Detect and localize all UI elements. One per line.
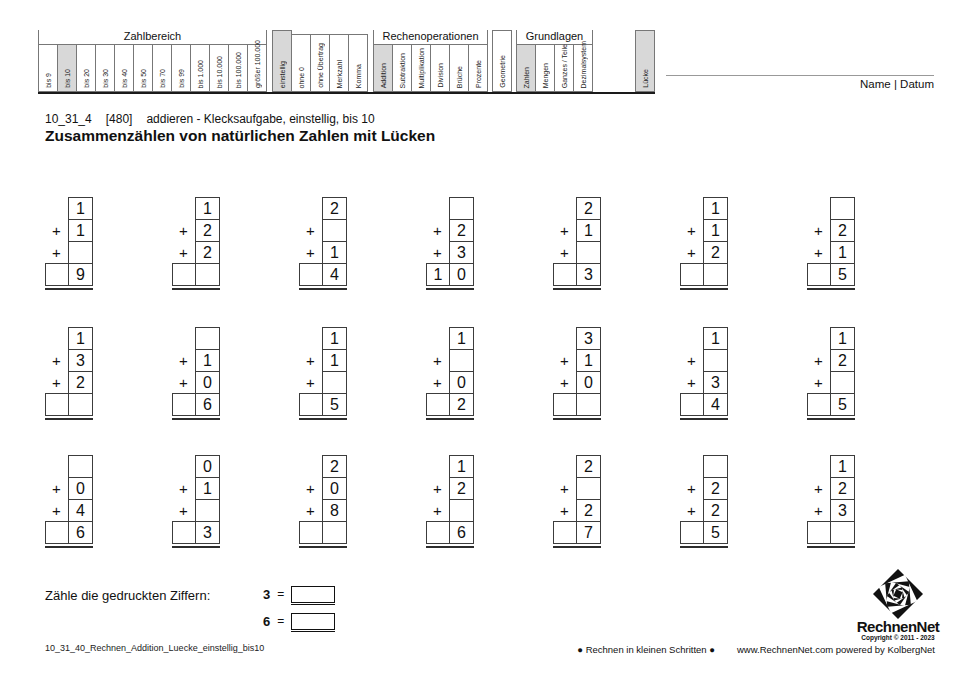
addend-row: + 2 [680,499,728,522]
filter-label: bis 70 [159,69,166,91]
plus-sign: + [45,219,68,242]
double-underline [299,288,347,290]
addend-box-3[interactable] [830,371,855,394]
addend-box-1[interactable] [195,327,220,350]
filter-ohne-0: ohne 0 [291,34,311,92]
addend-box-1: 1 [830,455,855,478]
addend-box-2: 2 [830,219,855,242]
filter-bis-70: bis 70 [152,44,172,92]
result-row [553,393,601,416]
addend-box-3: 2 [703,241,728,264]
result-tens-box[interactable] [807,263,831,286]
addend-box-3: 2 [195,241,220,264]
count-digit: 6 [263,613,270,630]
result-tens-box[interactable] [426,393,450,416]
plus-sign: + [553,371,576,394]
result-row: 6 [172,393,220,416]
addition-problem: 1 + 1 + 9 [45,197,93,290]
spacer [553,197,576,220]
filter-label: Division [437,63,444,91]
addend-box-3: 1 [830,241,855,264]
result-tens-box[interactable] [299,521,323,544]
result-ones-box[interactable] [195,263,220,286]
plus-sign: + [172,349,195,372]
spacer [680,197,703,220]
plus-sign: + [807,241,830,264]
addend-row: + 8 [299,499,347,522]
filter-label: Merkzahl [336,60,343,91]
addend-row: + 2 [807,219,855,242]
equals-sign: = [277,613,284,630]
result-ones-box: 5 [830,393,855,416]
addend-row: + 1 [45,219,93,242]
double-underline [45,418,93,420]
result-ones-box: 6 [449,521,474,544]
addend-row: + 2 [172,241,220,264]
plus-sign: + [807,499,830,522]
worksheet-desc: addieren - Klecksaufgabe, einstellig, bi… [146,112,374,126]
addition-problem: 1 + 1 + 5 [299,327,347,420]
addend-box-2: 0 [68,477,93,500]
addend-box-1: 1 [449,327,474,350]
addend-box-1: 2 [576,455,601,478]
filter-bis-9: bis 9 [38,44,58,92]
filter-bis-100000: bis 100.000 [228,44,248,92]
addend-row [426,197,474,220]
addend-box-3: 1 [322,241,347,264]
zahlbereich-cells: bis 9 bis 10 bis 20 bis 30 bis 40 bis 50… [38,44,267,92]
result-tens-box[interactable] [807,521,831,544]
addend-row: 0 [172,455,220,478]
addend-box-1: 1 [195,197,220,220]
addend-row: + 0 [553,371,601,394]
addend-box-3[interactable] [195,499,220,522]
addend-row: 1 [807,455,855,478]
addend-row: 1 [680,197,728,220]
footer-website: www.RechnenNet.com powered by KolbergNet [737,644,935,655]
result-tens-box[interactable] [45,393,69,416]
page-title: Zusammenzählen von natürlichen Zahlen mi… [45,127,435,145]
footer-filename: 10_31_40_Rechnen_Addition_Luecke_einstel… [45,643,264,653]
plus-sign: + [45,241,68,264]
addend-box-3[interactable] [449,499,474,522]
spacer [553,327,576,350]
plus-sign: + [299,371,322,394]
result-tens-box[interactable] [172,263,196,286]
result-row: 3 [172,521,220,544]
addend-box-2: 0 [322,477,347,500]
filter-division: Division [430,44,450,92]
result-ones-box: 4 [322,263,347,286]
footer-right: ● Rechnen in kleinen Schritten ● www.Rec… [577,644,935,655]
result-tens-box[interactable] [426,521,450,544]
result-row: 5 [680,521,728,544]
filter-label: Zahlen [523,67,530,91]
double-underline [291,631,335,632]
addend-box-2: 2 [830,477,855,500]
plus-sign: + [807,349,830,372]
filter-bis-10000: bis 10.000 [209,44,229,92]
addend-box-3: 4 [68,499,93,522]
result-row [45,393,93,416]
addend-row: + [299,219,347,242]
addend-box-2: 3 [68,349,93,372]
spacer [680,455,703,478]
addend-box-1[interactable] [703,455,728,478]
filter-label: ohne 0 [298,67,305,91]
plus-sign: + [45,371,68,394]
addend-box-1: 2 [322,455,347,478]
addend-row: + [680,349,728,372]
addend-box-2: 1 [576,349,601,372]
filter-label: bis 10.000 [216,56,223,91]
filter-label: bis 10 [64,69,71,91]
addend-row: + 3 [426,241,474,264]
filter-label: Ganzes / Teile [561,44,568,91]
result-tens-box[interactable] [299,263,323,286]
addend-row: + 1 [299,349,347,372]
plus-sign: + [426,499,449,522]
addend-row: + 1 [807,241,855,264]
filter-brueche: Brüche [449,44,469,92]
logo-name: RechnenNet [852,618,944,635]
plus-sign: + [172,371,195,394]
result-row [680,263,728,286]
result-row [172,263,220,286]
addend-box-3[interactable] [68,241,93,264]
filter-label: bis 99 [178,69,185,91]
result-tens-box[interactable] [172,393,196,416]
problems-row-2: 1 + 3 + 2 + 1 [45,327,855,420]
double-underline [45,546,93,548]
result-tens-box[interactable] [553,263,577,286]
addition-problem: 3 + 1 + 0 [553,327,601,420]
spacer [299,327,322,350]
result-tens-box[interactable] [553,521,577,544]
filter-label: bis 30 [102,69,109,91]
result-ones-box: 3 [576,263,601,286]
addend-box-2[interactable] [449,349,474,372]
filter-label: Addition [380,63,387,91]
addition-problem: 1 + 2 + 3 [807,455,855,548]
addend-box-1: 1 [703,327,728,350]
filter-multiplikation: Multiplikation [411,44,431,92]
result-row: 5 [299,393,347,416]
plus-sign: + [172,241,195,264]
filter-label: Subtraktion [399,53,406,91]
addend-row: + 2 [680,241,728,264]
result-ones-box[interactable] [68,393,93,416]
count-row-6: 6 = [263,613,335,632]
result-row: 2 [426,393,474,416]
double-underline [807,288,855,290]
result-ones-box: 5 [322,393,347,416]
plus-sign: + [680,499,703,522]
addend-row: 1 [807,327,855,350]
filter-label: Prozente [475,60,482,91]
addend-row: + 1 [172,477,220,500]
addend-row: + 1 [553,219,601,242]
filter-label: Geometrie [499,55,506,91]
addend-box-1[interactable] [830,197,855,220]
addend-row: 2 [299,197,347,220]
plus-sign: + [680,349,703,372]
addend-row: + 0 [299,477,347,500]
result-tens-box[interactable] [299,393,323,416]
spacer [807,197,830,220]
rechenoperationen-group: Rechenoperationen Addition Subtraktion M… [373,30,488,92]
spacer [299,455,322,478]
spacer [553,455,576,478]
addend-box-3[interactable] [322,371,347,394]
spacer [680,327,703,350]
result-tens-box[interactable] [807,393,831,416]
addend-box-3: 0 [576,371,601,394]
filter-merkzahl: Merkzahl [329,34,349,92]
addend-box-2[interactable] [322,219,347,242]
plus-sign: + [299,349,322,372]
double-underline [172,418,220,420]
result-tens-box[interactable] [45,263,69,286]
addition-problem: 1 + 2 + 6 [426,455,474,548]
filter-groesser-100000: größer 100.000 [247,44,267,92]
plus-sign: + [299,241,322,264]
filter-label: Brüche [456,66,463,91]
addend-row [172,327,220,350]
addition-problem: 1 + + 0 2 [426,327,474,420]
addend-box-3: 0 [449,371,474,394]
filter-luecke: Lücke [635,30,655,92]
addend-row: + 2 [172,219,220,242]
result-tens-box[interactable] [680,263,704,286]
count-digit: 3 [263,586,270,603]
addend-row: + [299,371,347,394]
addend-row: + 2 [426,219,474,242]
addend-row [45,455,93,478]
double-underline [299,418,347,420]
filter-bis-1000: bis 1.000 [190,44,210,92]
zahlbereich-group: Zahlbereich bis 9 bis 10 bis 20 bis 30 b… [38,30,267,92]
filter-prozente: Prozente [468,44,488,92]
worksheet-ref: [480] [106,112,133,126]
zahlbereich-group-label: Zahlbereich [38,30,267,44]
addition-problem: + 2 + 1 5 [807,197,855,290]
result-ones-box[interactable] [576,393,601,416]
addend-row: + 1 [172,349,220,372]
addend-row: 1 [172,197,220,220]
filter-bis-50: bis 50 [133,44,153,92]
spacer [45,327,68,350]
addend-row: + 2 [45,371,93,394]
worksheet-meta: 10_31_4 [480] addieren - Klecksaufgabe, … [45,112,375,126]
addend-row [680,455,728,478]
addend-box-3: 3 [449,241,474,264]
result-ones-box[interactable] [322,521,347,544]
filter-komma: Komma [348,34,368,92]
result-row: 3 [553,263,601,286]
result-row [807,521,855,544]
count-row-3: 3 = [263,586,335,605]
addend-row: + 3 [680,371,728,394]
filter-mengen: Mengen [535,44,555,92]
result-ones-box: 9 [68,263,93,286]
result-ones-box: 6 [68,521,93,544]
addition-problem: 2 + 1 + 3 [553,197,601,290]
addend-box-3: 2 [703,499,728,522]
result-ones-box[interactable] [703,263,728,286]
result-tens-box[interactable] [172,521,196,544]
result-row [299,521,347,544]
addend-row: + [553,241,601,264]
addend-row: + 0 [426,371,474,394]
worksheet-page: Zahlbereich bis 9 bis 10 bis 20 bis 30 b… [0,0,963,681]
plus-sign: + [426,349,449,372]
filter-bis-99: bis 99 [171,44,191,92]
filter-bis-40: bis 40 [114,44,134,92]
double-underline [553,418,601,420]
result-tens-box[interactable] [553,393,577,416]
spacer [299,197,322,220]
problems-row-1: 1 + 1 + 9 1 + 2 [45,197,855,290]
addend-box-1: 2 [322,197,347,220]
addition-problem: + 2 + 2 5 [680,455,728,548]
filter-label: bis 50 [140,69,147,91]
addition-problem: 1 + + 3 4 [680,327,728,420]
addition-problem: 2 + 0 + 8 [299,455,347,548]
plus-sign: + [45,499,68,522]
filter-label: Multiplikation [418,48,425,91]
double-underline [426,418,474,420]
result-row: 6 [45,521,93,544]
result-tens-box[interactable] [680,393,704,416]
filter-addition: Addition [373,44,393,92]
filter-label: größer 100.000 [254,40,261,91]
spacer [807,327,830,350]
worksheet-code: 10_31_4 [45,112,92,126]
addend-box-2: 2 [195,219,220,242]
filter-label: bis 9 [45,73,52,91]
filter-label: bis 1.000 [197,60,204,91]
result-row: 5 [807,393,855,416]
addend-box-3: 3 [830,499,855,522]
addend-row: + 2 [553,499,601,522]
filter-einstellig: einstellig [272,30,292,92]
name-date-line [666,75,934,76]
addend-row: + 1 [680,219,728,242]
addend-box-2: 1 [68,219,93,242]
addition-problem: + 2 + 3 1 0 [426,197,474,290]
addend-row: + 4 [45,499,93,522]
addend-box-1: 1 [703,197,728,220]
addend-row: + 2 [426,477,474,500]
addend-box-1[interactable] [68,455,93,478]
addend-row: + [426,499,474,522]
addend-row: 3 [553,327,601,350]
filter-label: Dezimalsystem [580,41,587,91]
spacer [45,455,68,478]
double-underline [680,418,728,420]
filter-label: bis 20 [83,69,90,91]
count-answer-box[interactable] [291,613,335,630]
addend-row [807,197,855,220]
plus-sign: + [426,371,449,394]
result-tens-box: 1 [426,263,450,286]
result-row: 9 [45,263,93,286]
plus-sign: + [426,219,449,242]
result-tens-box[interactable] [45,521,69,544]
addend-box-3[interactable] [576,241,601,264]
plus-sign: + [553,349,576,372]
plus-sign: + [299,219,322,242]
count-answer-field[interactable] [291,613,335,632]
addend-box-2[interactable] [576,477,601,500]
result-ones-box: 5 [830,263,855,286]
plus-sign: + [426,241,449,264]
addend-row: 1 [45,327,93,350]
result-ones-box[interactable] [830,521,855,544]
plus-sign: + [553,241,576,264]
addition-problem: 1 + 2 + 2 [172,197,220,290]
double-underline [426,288,474,290]
spacer [426,455,449,478]
count-answer-field[interactable] [291,586,335,605]
result-row: 4 [299,263,347,286]
filter-bis-20: bis 20 [76,44,96,92]
addend-box-2[interactable] [703,349,728,372]
addend-row: + [172,499,220,522]
addend-box-2: 2 [449,219,474,242]
addend-row: 1 [299,327,347,350]
addend-box-2: 2 [449,477,474,500]
plus-sign: + [553,477,576,500]
count-answer-box[interactable] [291,586,335,603]
spacer [426,327,449,350]
plus-sign: + [553,219,576,242]
addend-box-1: 1 [449,455,474,478]
result-ones-box: 4 [703,393,728,416]
double-underline [807,546,855,548]
logo-copyright: Copyright © 2011 - 2023 [852,634,944,641]
addend-box-3: 2 [576,499,601,522]
filter-label: Komma [355,64,362,91]
plus-sign: + [45,477,68,500]
addend-box-2: 1 [576,219,601,242]
addend-row: + 2 [680,477,728,500]
addend-box-3: 8 [322,499,347,522]
result-ones-box: 3 [195,521,220,544]
spacer [45,197,68,220]
footer-slogan: ● Rechnen in kleinen Schritten ● [577,644,715,655]
addition-problem: 2 + + 2 7 [553,455,601,548]
addition-problem: 0 + 1 + 3 [172,455,220,548]
addend-box-3: 0 [195,371,220,394]
addend-row: 1 [45,197,93,220]
addend-box-1[interactable] [449,197,474,220]
double-underline [45,288,93,290]
addition-problem: 1 + 1 + 2 [680,197,728,290]
addend-row: + 2 [807,477,855,500]
filter-label: bis 40 [121,69,128,91]
plus-sign: + [299,477,322,500]
addend-row: + 1 [553,349,601,372]
addend-box-1: 2 [576,197,601,220]
double-underline [680,288,728,290]
plus-sign: + [172,499,195,522]
addend-row: 2 [553,455,601,478]
filter-label: einstellig [279,61,286,91]
result-tens-box[interactable] [680,521,704,544]
filter-label: ohne Übertrag [317,43,324,91]
